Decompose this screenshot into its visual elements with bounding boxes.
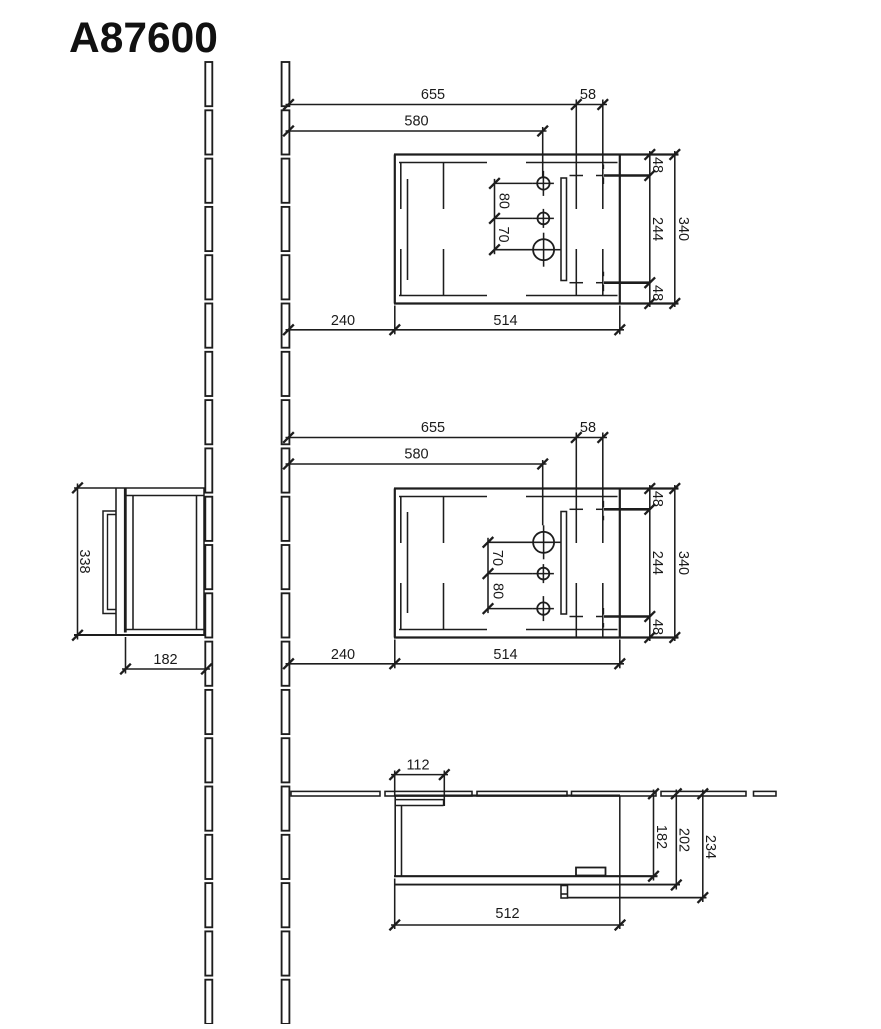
svg-text:202: 202 (676, 828, 692, 852)
svg-text:70: 70 (495, 226, 511, 242)
svg-text:340: 340 (675, 217, 691, 241)
svg-text:580: 580 (404, 114, 428, 130)
svg-text:58: 58 (580, 420, 596, 436)
svg-text:340: 340 (675, 551, 691, 575)
svg-text:244: 244 (649, 217, 665, 241)
svg-text:240: 240 (331, 647, 355, 663)
svg-text:244: 244 (649, 551, 665, 575)
svg-text:240: 240 (331, 313, 355, 329)
svg-text:48: 48 (649, 619, 665, 635)
svg-text:70: 70 (489, 550, 505, 566)
svg-text:A87600: A87600 (69, 15, 218, 62)
svg-text:80: 80 (495, 193, 511, 209)
svg-text:338: 338 (76, 549, 92, 573)
svg-text:655: 655 (421, 87, 445, 103)
svg-text:112: 112 (406, 758, 429, 774)
svg-text:514: 514 (493, 313, 517, 329)
svg-text:48: 48 (649, 285, 665, 301)
svg-text:182: 182 (153, 652, 177, 668)
svg-text:48: 48 (649, 491, 665, 507)
svg-text:182: 182 (653, 825, 669, 849)
svg-text:512: 512 (495, 906, 519, 922)
svg-text:580: 580 (404, 447, 428, 463)
svg-text:514: 514 (493, 647, 517, 663)
svg-text:80: 80 (490, 583, 506, 599)
svg-text:48: 48 (649, 157, 665, 173)
svg-text:58: 58 (580, 87, 596, 103)
svg-text:234: 234 (702, 835, 718, 859)
svg-text:655: 655 (421, 420, 445, 436)
